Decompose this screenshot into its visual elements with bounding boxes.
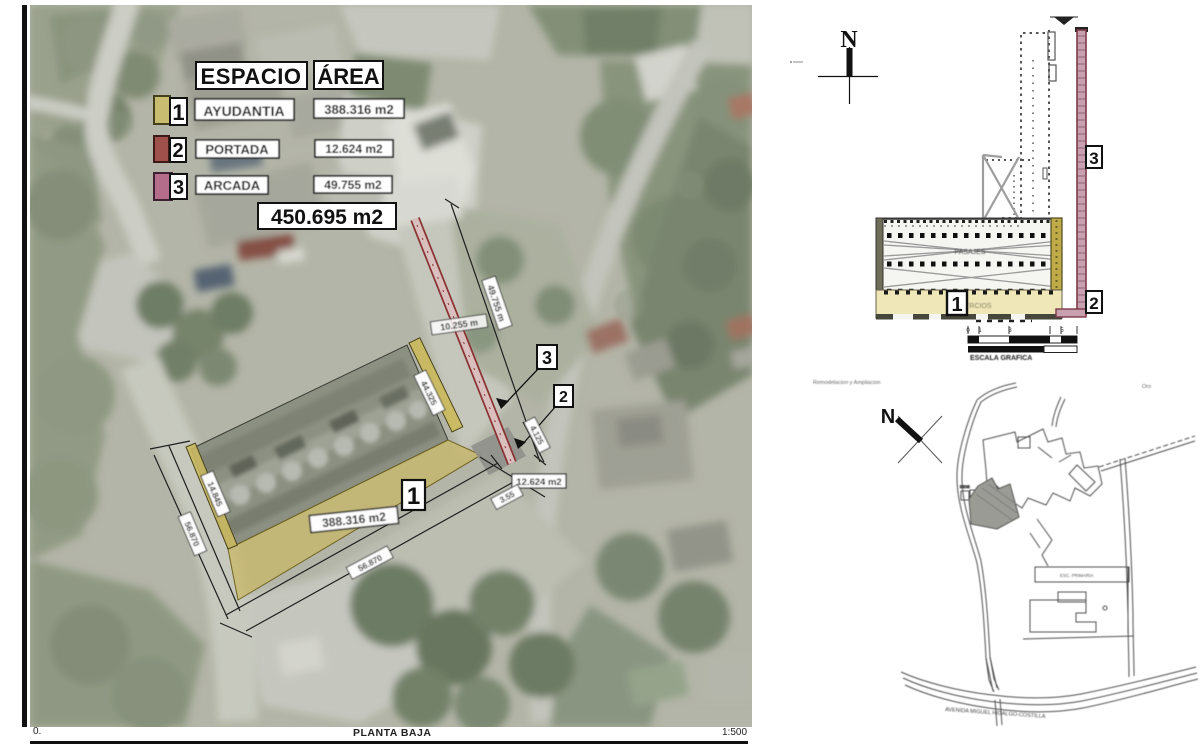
svg-text:ESCALA GRAFICA: ESCALA GRAFICA — [970, 355, 1032, 362]
svg-text:2: 2 — [1089, 294, 1098, 313]
svg-text:PORTADA: PORTADA — [205, 142, 269, 157]
svg-text:ARCADA: ARCADA — [204, 178, 261, 193]
svg-text:3: 3 — [1008, 328, 1012, 334]
svg-text:ESC. PRIMARIA: ESC. PRIMARIA — [1060, 573, 1094, 578]
svg-text:AYUDANTIA: AYUDANTIA — [203, 103, 284, 119]
svg-text:3: 3 — [1089, 149, 1098, 168]
svg-text:1: 1 — [407, 483, 420, 510]
svg-text:1: 1 — [978, 328, 982, 334]
svg-text:3: 3 — [173, 177, 184, 199]
svg-text:ESPACIO: ESPACIO — [201, 64, 302, 89]
svg-text:2: 2 — [559, 389, 568, 406]
svg-text:1: 1 — [951, 294, 962, 316]
svg-text:2: 2 — [172, 140, 183, 162]
svg-text:49.755 m2: 49.755 m2 — [324, 178, 382, 192]
svg-text:0: 0 — [966, 328, 970, 334]
svg-text:450.695 m2: 450.695 m2 — [271, 206, 383, 229]
svg-text:3: 3 — [542, 348, 552, 368]
svg-text:PASAJES: PASAJES — [955, 249, 986, 256]
svg-text:Remodelacion y Ampliacion: Remodelacion y Ampliacion — [813, 380, 881, 386]
svg-text:ÁREA: ÁREA — [317, 64, 379, 89]
svg-text:KIOS: KIOS — [960, 484, 970, 489]
svg-text:12.624 m2: 12.624 m2 — [325, 142, 383, 156]
svg-text:5: 5 — [1060, 328, 1064, 334]
svg-text:N: N — [881, 406, 895, 428]
svg-text:1: 1 — [172, 100, 184, 125]
svg-text:388.316 m2: 388.316 m2 — [324, 102, 393, 117]
svg-text:Oro: Oro — [1142, 384, 1151, 390]
svg-text:12.624 m2: 12.624 m2 — [516, 477, 561, 488]
